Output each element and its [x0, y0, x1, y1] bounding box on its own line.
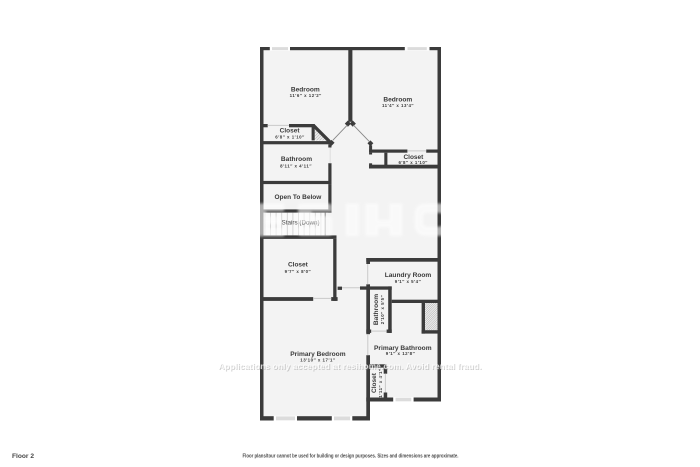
svg-text:9′7″ x 8′0″: 9′7″ x 8′0″ — [285, 269, 312, 274]
svg-text:6′8″ x 1′10″: 6′8″ x 1′10″ — [398, 160, 428, 165]
svg-text:9′1″ x 12′8″: 9′1″ x 12′8″ — [386, 351, 416, 356]
svg-text:Bathroom: Bathroom — [281, 156, 312, 163]
svg-text:1′11″ x 4′1″: 1′11″ x 4′1″ — [378, 368, 383, 398]
svg-text:Open To Below: Open To Below — [274, 194, 322, 201]
svg-text:11′6″ x 12′2″: 11′6″ x 12′2″ — [290, 93, 322, 98]
svg-text:Closet: Closet — [371, 372, 378, 393]
svg-text:8′11″ x 4′11″: 8′11″ x 4′11″ — [280, 164, 312, 169]
svg-text:Applications only accepted at: Applications only accepted at resihome.c… — [219, 362, 482, 371]
svg-text:Closet: Closet — [288, 262, 309, 269]
svg-text:9′1″ x 5′4″: 9′1″ x 5′4″ — [395, 279, 422, 284]
svg-text:Floor 2: Floor 2 — [12, 453, 34, 460]
svg-text:2′10″ x 5′5″: 2′10″ x 5′5″ — [380, 294, 385, 324]
svg-text:Floor plans/tour cannot be use: Floor plans/tour cannot be used for buil… — [243, 454, 460, 460]
svg-text:11′4″ x 13′4″: 11′4″ x 13′4″ — [382, 103, 414, 108]
svg-text:6′8″ x 1′10″: 6′8″ x 1′10″ — [275, 134, 305, 139]
